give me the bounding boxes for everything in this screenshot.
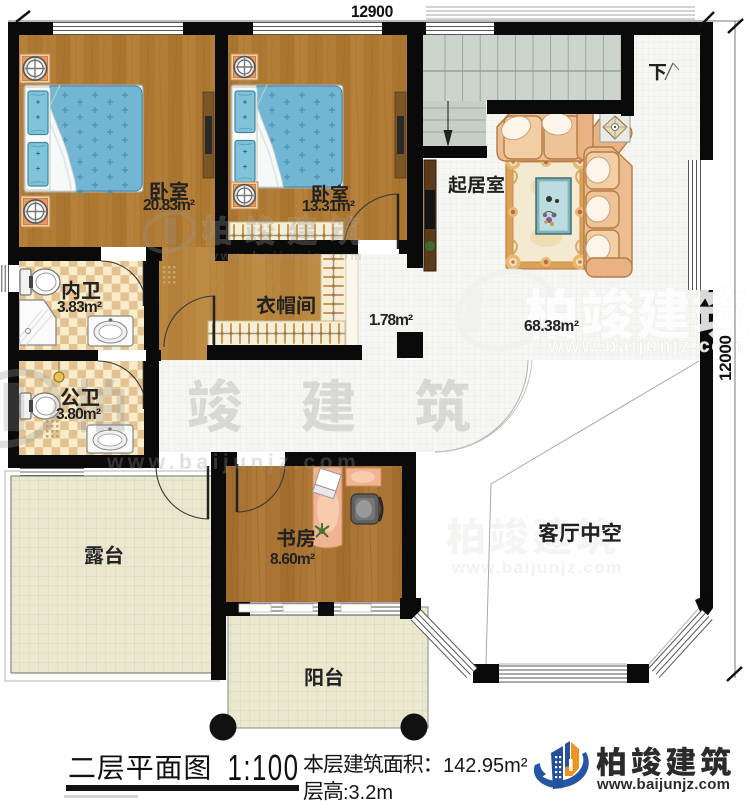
svg-text:3.83m²: 3.83m² (57, 299, 102, 316)
svg-text:12900: 12900 (351, 2, 393, 21)
svg-text:20.83m²: 20.83m² (143, 197, 195, 214)
svg-text:1.78m²: 1.78m² (369, 312, 413, 329)
svg-text:www.baijunjz.com: www.baijunjz.com (451, 558, 623, 577)
svg-text:8.60m²: 8.60m² (270, 551, 315, 568)
svg-text:13.31m²: 13.31m² (302, 198, 355, 215)
svg-text:142.95m²: 142.95m² (443, 755, 528, 777)
svg-text:www.baijunjz.com: www.baijunjz.com (106, 451, 360, 474)
svg-text:12000: 12000 (716, 335, 735, 381)
svg-text::3.2m: :3.2m (343, 782, 393, 804)
svg-text:www.baijunjz.com: www.baijunjz.com (547, 336, 744, 357)
svg-text:www.baijunjz.com: www.baijunjz.com (207, 249, 365, 263)
svg-text:www.baijunjz.com: www.baijunjz.com (596, 776, 730, 793)
svg-text:68.38m²: 68.38m² (524, 318, 579, 335)
svg-text:3.80m²: 3.80m² (56, 406, 101, 423)
svg-text:1:100: 1:100 (228, 748, 299, 788)
